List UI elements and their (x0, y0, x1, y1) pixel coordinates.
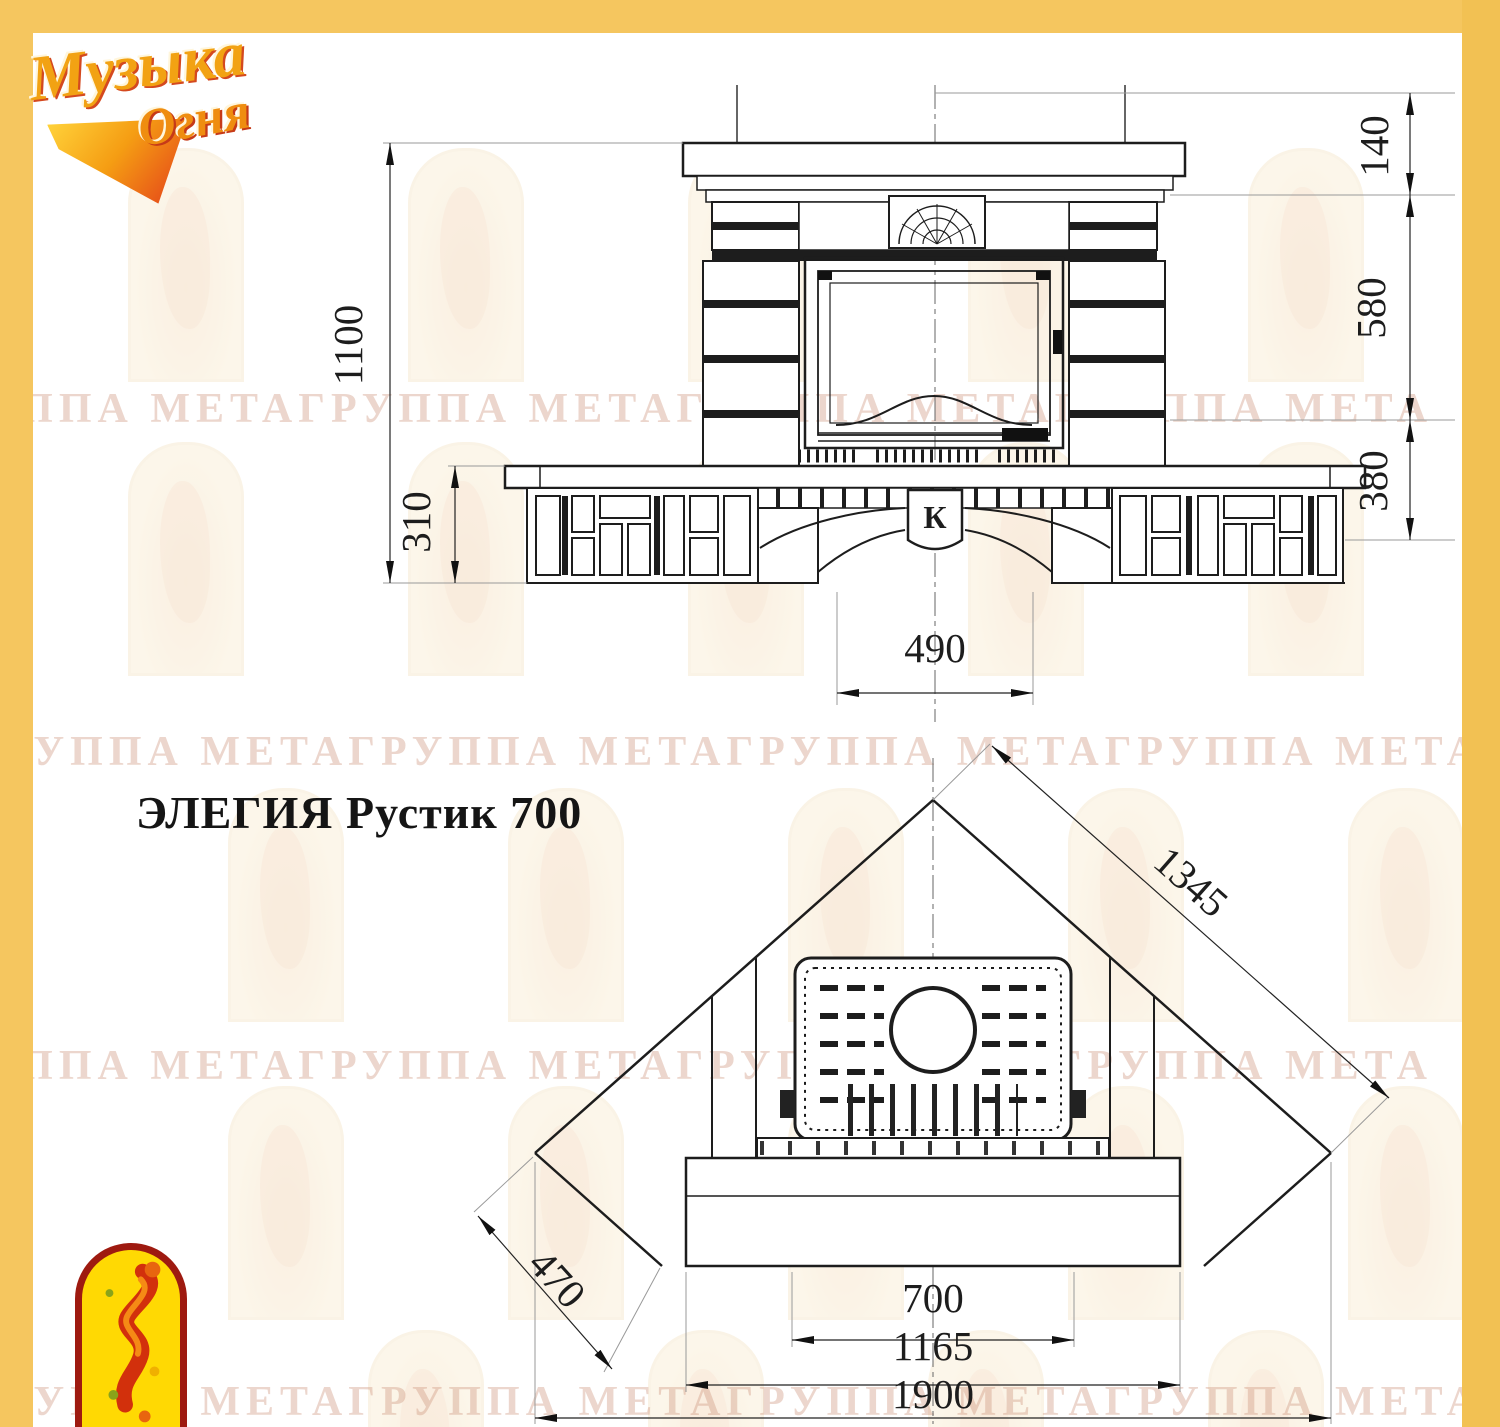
dim-label-base-height: 310 (393, 491, 439, 553)
arch-emblem (75, 1243, 187, 1427)
dim-label-cornice: 140 (1351, 115, 1397, 177)
dim-label-side-depth: 1345 (1145, 837, 1237, 926)
dim-label-firebox-width: 700 (902, 1275, 964, 1321)
dim-label-firebox-zone: 580 (1348, 277, 1394, 339)
dim-label-total-width: 1900 (892, 1371, 974, 1417)
keystone-letter: К (923, 499, 946, 535)
page: ГРУППА МЕТАГРУППА МЕТАГРУППА МЕТАГРУППА … (0, 0, 1500, 1427)
firebox-door (805, 258, 1063, 448)
dim-label-hearth-width: 1165 (893, 1323, 973, 1369)
dim-label-corner-side: 470 (520, 1240, 595, 1316)
shell-ornament (889, 196, 985, 248)
hearth-bench (686, 1158, 1180, 1266)
stone-field-left (527, 488, 758, 583)
firebox-insert-topview (780, 958, 1086, 1140)
dim-label-base-zone: 380 (1350, 450, 1396, 512)
page-title: ЭЛЕГИЯ Рустик 700 (136, 786, 582, 839)
stone-field-right (1112, 488, 1343, 583)
dim-label-total-height: 1100 (325, 305, 371, 385)
dancing-flame-icon (82, 1250, 180, 1427)
dim-label-niche-width: 490 (904, 625, 966, 671)
technical-drawing: 1100 310 140 580 380 490 К (0, 0, 1500, 1427)
door-handle (1002, 428, 1048, 441)
brand-logo: Музыка Огня (5, 0, 327, 226)
